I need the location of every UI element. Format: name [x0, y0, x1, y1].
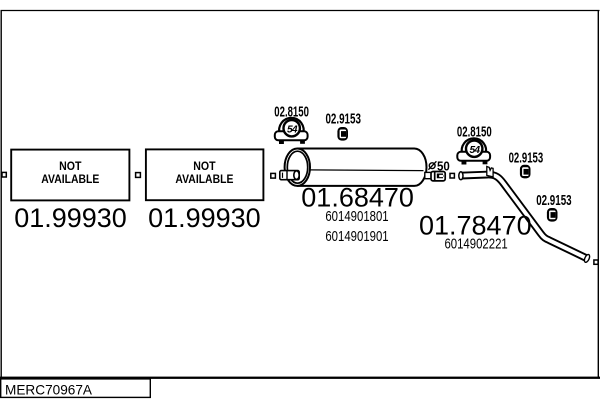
- svg-text:50: 50: [437, 158, 450, 173]
- svg-text:02.9153: 02.9153: [325, 111, 361, 127]
- svg-text:02.9153: 02.9153: [536, 193, 571, 209]
- svg-text:MERC70967A: MERC70967A: [5, 383, 93, 398]
- svg-text:6014901901: 6014901901: [325, 229, 388, 245]
- svg-text:01.99930: 01.99930: [148, 203, 261, 233]
- svg-text:6014901801: 6014901801: [325, 209, 388, 225]
- svg-text:54: 54: [470, 145, 481, 156]
- svg-text:54: 54: [287, 124, 298, 135]
- svg-text:AVAILABLE: AVAILABLE: [175, 173, 233, 186]
- svg-text:01.99930: 01.99930: [14, 203, 127, 233]
- svg-text:02.9153: 02.9153: [509, 151, 544, 167]
- svg-text:NOT: NOT: [193, 160, 215, 173]
- svg-text:NOT: NOT: [59, 160, 81, 173]
- svg-text:6014902221: 6014902221: [444, 237, 507, 253]
- svg-text:AVAILABLE: AVAILABLE: [41, 173, 99, 186]
